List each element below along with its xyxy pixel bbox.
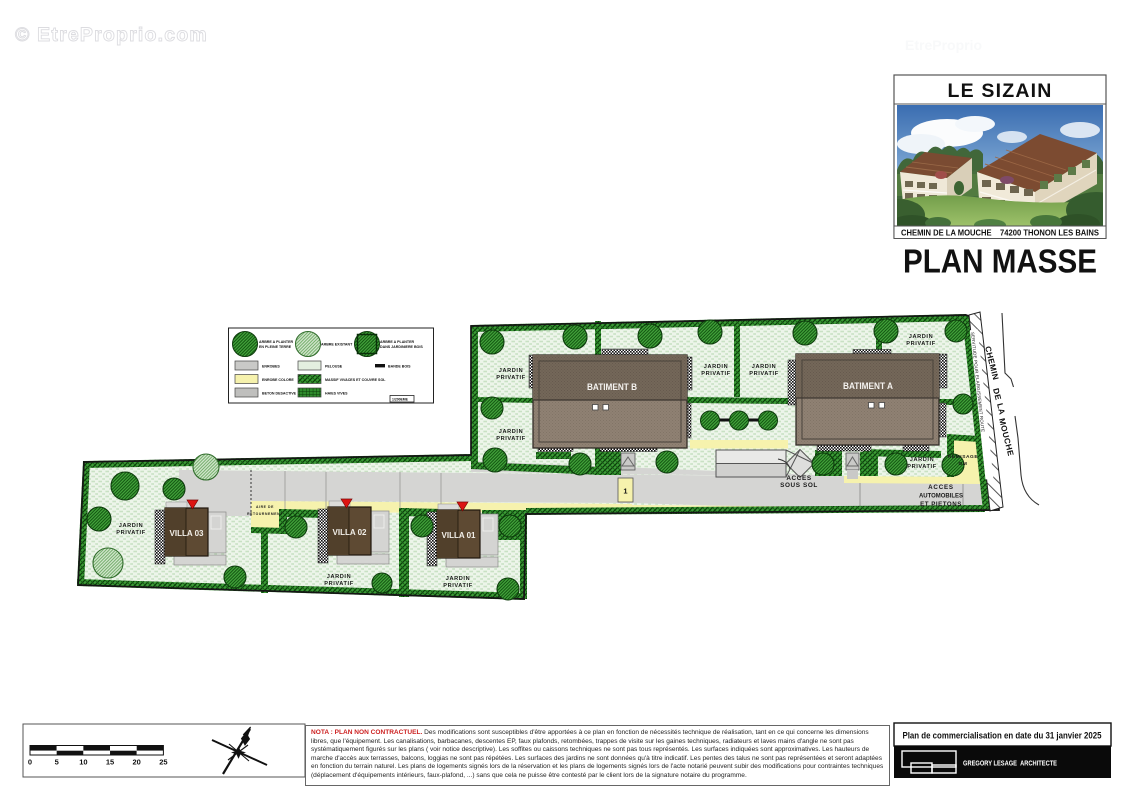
svg-text:HAIES VIVES: HAIES VIVES xyxy=(325,392,348,396)
svg-text:20: 20 xyxy=(133,758,141,767)
svg-text:ARBRE A PLANTER: ARBRE A PLANTER xyxy=(380,340,414,344)
svg-text:JARDIN: JARDIN xyxy=(499,429,523,435)
svg-text:DANS JARDINIERE BOIS: DANS JARDINIERE BOIS xyxy=(380,345,423,349)
svg-text:PRIVATIF: PRIVATIF xyxy=(906,341,935,347)
svg-text:PRIVATIF: PRIVATIF xyxy=(749,371,778,377)
svg-text:BANDE BOIS: BANDE BOIS xyxy=(388,365,411,369)
svg-text:PELOUSE: PELOUSE xyxy=(325,365,343,369)
svg-text:ACCES: ACCES xyxy=(786,475,812,482)
svg-text:LA: LA xyxy=(995,402,1007,416)
svg-text:PRIVATIF: PRIVATIF xyxy=(443,583,472,589)
svg-text:5: 5 xyxy=(55,758,59,767)
svg-text:JARDIN: JARDIN xyxy=(910,457,934,463)
svg-text:EN PLEINE TERRE: EN PLEINE TERRE xyxy=(259,345,292,349)
svg-text:PRIVATIF: PRIVATIF xyxy=(116,530,145,536)
svg-text:JARDIN: JARDIN xyxy=(499,368,523,374)
svg-text:CHEMIN DE LA MOUCHE 74200 T: CHEMIN DE LA MOUCHE 74200 THONON LES BAI… xyxy=(901,228,1099,238)
svg-text:ENROBE COLORE: ENROBE COLORE xyxy=(262,378,294,382)
svg-text:JARDIN: JARDIN xyxy=(327,574,351,580)
svg-text:ET PIETONS: ET PIETONS xyxy=(920,501,962,508)
svg-text:ENROBES: ENROBES xyxy=(262,365,280,369)
svg-text:JARDIN: JARDIN xyxy=(752,364,776,370)
svg-text:MASSIF VIVACES ET COUVRE SOL: MASSIF VIVACES ET COUVRE SOL xyxy=(325,378,386,382)
svg-text:PRIVATIF: PRIVATIF xyxy=(701,371,730,377)
svg-text:ACCES: ACCES xyxy=(928,484,954,491)
svg-text:EtreProprio: EtreProprio xyxy=(905,37,982,53)
svg-text:VILLA 01: VILLA 01 xyxy=(442,531,476,540)
svg-text:ARBRE A PLANTER: ARBRE A PLANTER xyxy=(259,340,293,344)
svg-text:AUTOMOBILES: AUTOMOBILES xyxy=(919,493,963,500)
svg-text:SOUS SOL: SOUS SOL xyxy=(780,482,818,489)
svg-text:OM: OM xyxy=(959,461,968,467)
svg-text:JARDIN: JARDIN xyxy=(119,523,143,529)
svg-text:25: 25 xyxy=(159,758,167,767)
svg-text:15: 15 xyxy=(106,758,114,767)
svg-text:REMISAGE: REMISAGE xyxy=(948,454,979,460)
svg-text:PRIVATIF: PRIVATIF xyxy=(324,581,353,587)
svg-text:RETOURNEMENT: RETOURNEMENT xyxy=(247,512,283,516)
svg-text:BETON DESACTIVE: BETON DESACTIVE xyxy=(262,392,297,396)
svg-text:ARBRE EXISTANT: ARBRE EXISTANT xyxy=(321,343,353,347)
svg-text:0: 0 xyxy=(28,758,32,767)
svg-text:MOUCHE: MOUCHE xyxy=(997,417,1015,457)
svg-text:JARDIN: JARDIN xyxy=(446,576,470,582)
svg-text:PLAN MASSE: PLAN MASSE xyxy=(903,243,1097,280)
svg-text:JARDIN: JARDIN xyxy=(704,364,728,370)
svg-text:BATIMENT B: BATIMENT B xyxy=(587,382,637,393)
svg-text:PRIVATIF: PRIVATIF xyxy=(496,375,525,381)
svg-text:LE SIZAIN: LE SIZAIN xyxy=(947,80,1052,102)
svg-text:AIRE DE: AIRE DE xyxy=(256,505,274,509)
svg-text:DE: DE xyxy=(991,387,1003,401)
svg-text:PRIVATIF: PRIVATIF xyxy=(907,464,936,470)
svg-text:Plan de commercialisation en d: Plan de commercialisation en date du 31 … xyxy=(903,730,1102,741)
svg-text:VILLA 03: VILLA 03 xyxy=(170,529,204,538)
svg-text:VILLA 02: VILLA 02 xyxy=(333,528,367,537)
svg-text:1: 1 xyxy=(623,487,627,496)
svg-text:BATIMENT A: BATIMENT A xyxy=(843,381,893,392)
svg-text:10: 10 xyxy=(79,758,87,767)
svg-text:JARDIN: JARDIN xyxy=(909,334,933,340)
svg-text:GREGORY LESAGE ARCHITECTE: GREGORY LESAGE ARCHITECTE xyxy=(963,761,1057,768)
svg-text:PRIVATIF: PRIVATIF xyxy=(496,436,525,442)
svg-text:© EtreProprio.com: © EtreProprio.com xyxy=(15,24,208,46)
svg-text:1/200EME: 1/200EME xyxy=(392,398,409,402)
